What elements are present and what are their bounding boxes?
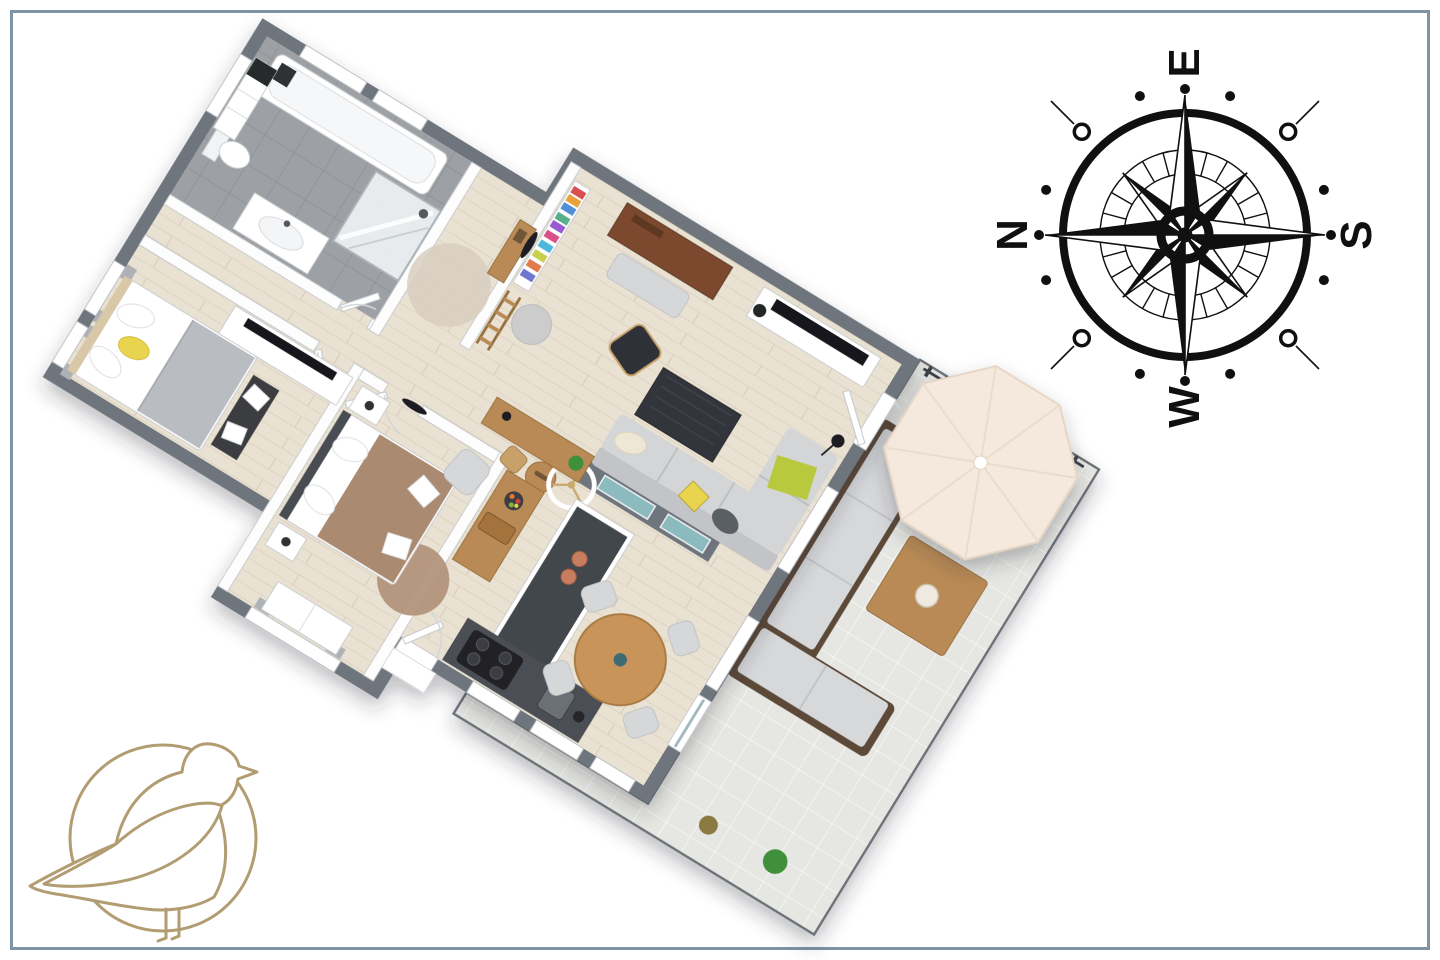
- seagull-logo: [30, 744, 257, 941]
- compass-label-south: S: [1332, 220, 1381, 249]
- page: E S W N: [0, 0, 1440, 960]
- compass-hub-dot: [1178, 228, 1193, 243]
- compass-label-east: E: [1160, 48, 1209, 77]
- scene: E S W N: [0, 0, 1440, 960]
- seagull-legs: [158, 909, 179, 941]
- compass-label-north: N: [988, 219, 1037, 251]
- compass-rose: E S W N: [988, 48, 1381, 427]
- compass-label-west: W: [1160, 386, 1209, 428]
